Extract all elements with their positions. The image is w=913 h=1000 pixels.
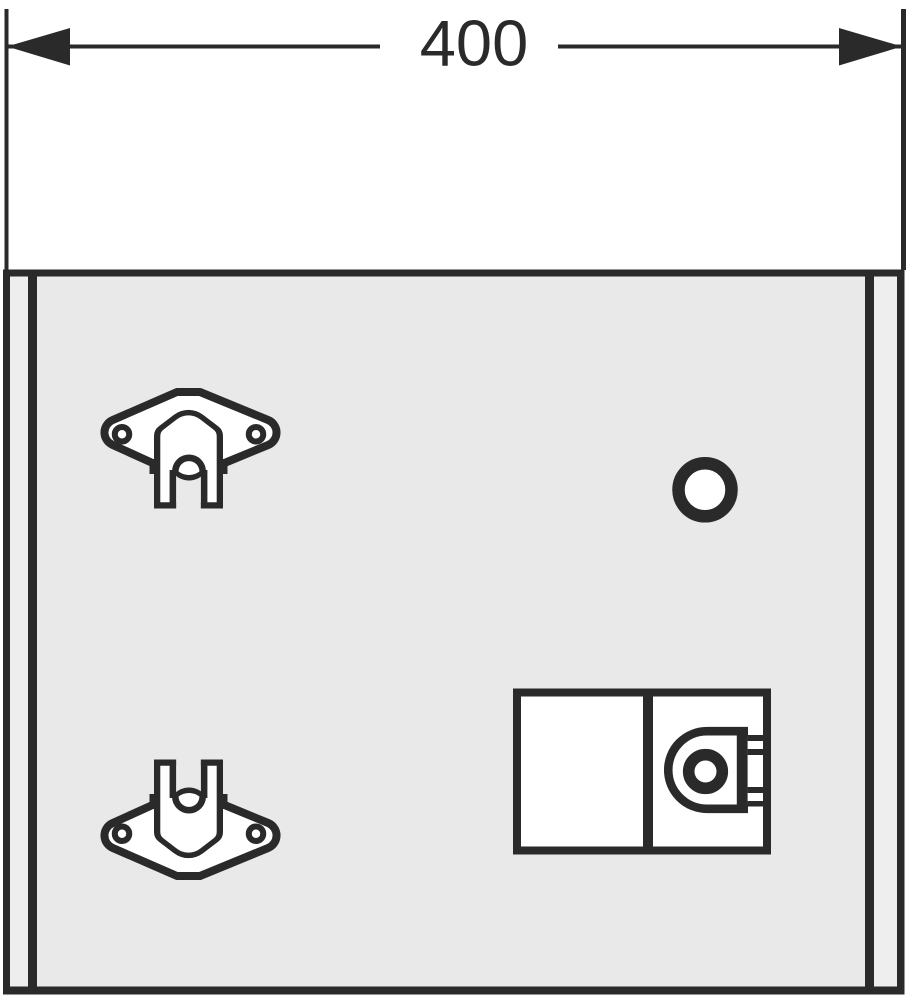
svg-text:400: 400 [420, 7, 528, 80]
